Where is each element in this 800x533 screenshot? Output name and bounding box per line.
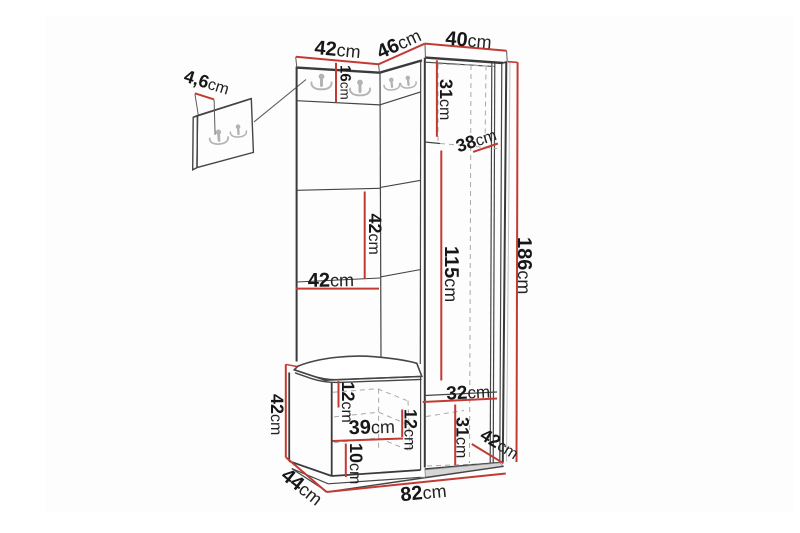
svg-text:31cm: 31cm xyxy=(436,79,456,120)
svg-text:4,6cm: 4,6cm xyxy=(182,66,232,99)
svg-text:32cm: 32cm xyxy=(446,381,491,404)
svg-text:39cm: 39cm xyxy=(348,416,395,440)
svg-text:12cm: 12cm xyxy=(401,409,421,450)
svg-text:186cm: 186cm xyxy=(513,237,535,294)
svg-text:42cm: 42cm xyxy=(314,37,362,63)
svg-text:10cm: 10cm xyxy=(346,443,366,484)
svg-text:42cm: 42cm xyxy=(308,269,355,292)
svg-text:16cm: 16cm xyxy=(337,65,354,100)
svg-text:31cm: 31cm xyxy=(453,417,473,458)
svg-text:42cm: 42cm xyxy=(365,214,385,255)
svg-text:40cm: 40cm xyxy=(445,28,493,54)
svg-text:82cm: 82cm xyxy=(399,480,447,506)
svg-text:46cm: 46cm xyxy=(373,24,424,63)
svg-text:42cm: 42cm xyxy=(267,394,287,435)
svg-text:115cm: 115cm xyxy=(440,246,462,302)
